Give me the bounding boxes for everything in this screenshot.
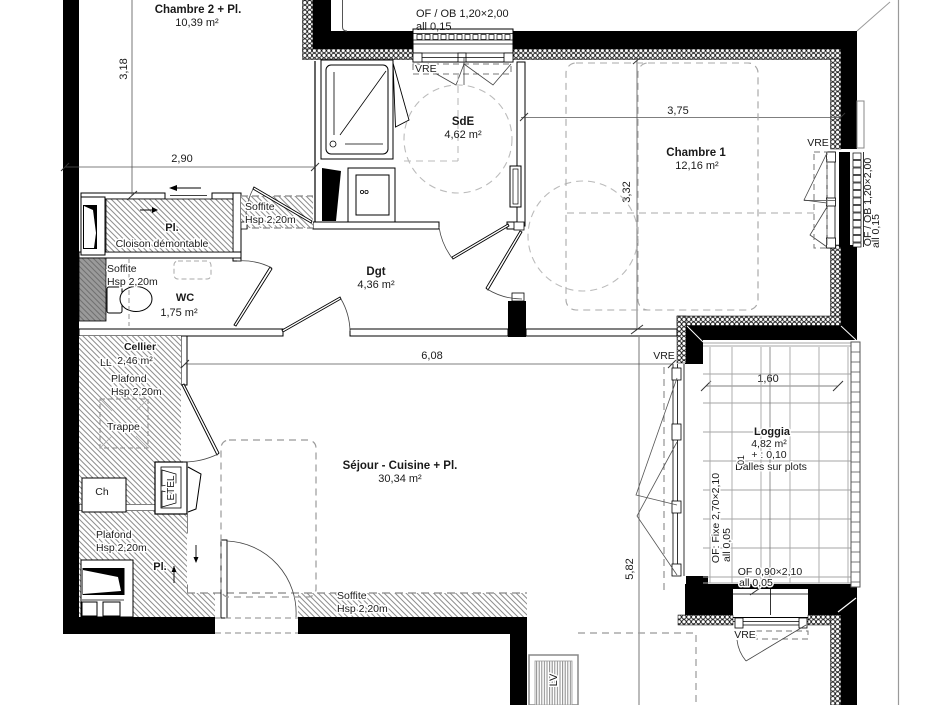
svg-text:Plafond: Plafond bbox=[111, 373, 147, 385]
svg-text:Séjour - Cuisine + Pl.: Séjour - Cuisine + Pl. bbox=[343, 460, 458, 472]
svg-text:LL: LL bbox=[100, 357, 112, 369]
svg-text:Chambre 2 + Pl.: Chambre 2 + Pl. bbox=[155, 4, 242, 16]
svg-text:VRE: VRE bbox=[807, 137, 829, 149]
svg-text:4,62 m²: 4,62 m² bbox=[444, 129, 482, 141]
svg-text:10,39 m²: 10,39 m² bbox=[175, 17, 219, 29]
svg-text:Trappe: Trappe bbox=[107, 421, 140, 433]
svg-text:OF / OB 1,20×2,00: OF / OB 1,20×2,00 bbox=[416, 8, 509, 20]
svg-text:12,16 m²: 12,16 m² bbox=[675, 160, 719, 172]
svg-text:3,75: 3,75 bbox=[667, 105, 688, 117]
svg-text:3,18: 3,18 bbox=[118, 58, 130, 79]
svg-text:Hsp 2,20m: Hsp 2,20m bbox=[107, 276, 158, 288]
svg-text:Plafond: Plafond bbox=[96, 529, 132, 541]
svg-text:30,34 m²: 30,34 m² bbox=[378, 473, 422, 485]
svg-text:Chambre 1: Chambre 1 bbox=[666, 147, 726, 159]
svg-text:all 0,05: all 0,05 bbox=[721, 528, 733, 562]
svg-text:Loggia: Loggia bbox=[754, 426, 791, 438]
svg-text:Soffite: Soffite bbox=[245, 201, 275, 213]
svg-text:WC: WC bbox=[176, 292, 194, 304]
svg-text:VRE: VRE bbox=[734, 629, 756, 641]
svg-text:+ : 0,10: + : 0,10 bbox=[751, 449, 786, 461]
svg-text:01: 01 bbox=[736, 455, 746, 465]
svg-text:1,60: 1,60 bbox=[757, 373, 778, 385]
svg-text:all 0,15: all 0,15 bbox=[870, 214, 882, 248]
svg-text:all 0,05: all 0,05 bbox=[739, 577, 773, 589]
svg-text:all 0,15: all 0,15 bbox=[416, 21, 451, 33]
svg-text:ETEL: ETEL bbox=[166, 475, 177, 500]
svg-text:Pl.: Pl. bbox=[165, 222, 178, 234]
svg-text:VRE: VRE bbox=[653, 350, 675, 362]
svg-text:1,75 m²: 1,75 m² bbox=[160, 307, 198, 319]
svg-text:Cellier: Cellier bbox=[124, 341, 156, 353]
svg-text:SdE: SdE bbox=[452, 116, 475, 128]
svg-text:Hsp 2,20m: Hsp 2,20m bbox=[111, 386, 162, 398]
svg-text:Hsp 2,20m: Hsp 2,20m bbox=[245, 214, 296, 226]
svg-text:Cloison démontable: Cloison démontable bbox=[116, 238, 209, 250]
svg-text:Hsp 2,20m: Hsp 2,20m bbox=[96, 542, 147, 554]
svg-text:2,90: 2,90 bbox=[171, 153, 192, 165]
svg-text:3,32: 3,32 bbox=[621, 181, 633, 202]
svg-text:5,82: 5,82 bbox=[624, 558, 636, 579]
svg-text:LV: LV bbox=[548, 673, 560, 686]
svg-text:VRE: VRE bbox=[415, 63, 437, 75]
svg-text:Dgt: Dgt bbox=[366, 266, 385, 278]
svg-text:6,08: 6,08 bbox=[421, 350, 442, 362]
svg-text:Soffite: Soffite bbox=[107, 263, 137, 275]
svg-text:Pl.: Pl. bbox=[153, 561, 166, 573]
svg-text:Hsp 2,20m: Hsp 2,20m bbox=[337, 603, 388, 615]
svg-text:Soffite: Soffite bbox=[337, 590, 367, 602]
svg-text:2,46 m²: 2,46 m² bbox=[117, 355, 153, 367]
svg-text:Ch: Ch bbox=[95, 486, 109, 498]
svg-text:4,36 m²: 4,36 m² bbox=[357, 279, 395, 291]
